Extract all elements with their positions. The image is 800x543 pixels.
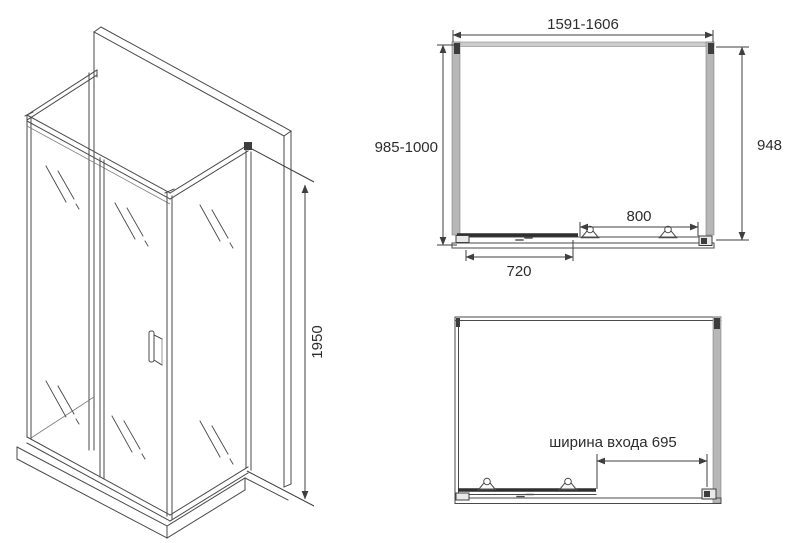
dimension-side-depth: 948 <box>716 47 782 240</box>
roller-right-open <box>559 478 577 490</box>
technical-drawing: 1950 <box>0 0 800 543</box>
glass-reflection-marks <box>46 166 233 464</box>
plan-view-open: ширина входа 695 <box>455 317 721 504</box>
dimension-door-width: 720 <box>466 240 573 280</box>
enclosure-frame <box>452 42 714 235</box>
entrance-width-label: ширина входа 695 <box>549 434 677 451</box>
dimension-depth-range: 985-1000 <box>375 45 457 245</box>
shower-tray <box>17 447 288 538</box>
door-width-label: 720 <box>506 263 531 280</box>
isometric-view: 1950 <box>17 27 326 538</box>
overall-width-label: 1591-1606 <box>547 16 619 33</box>
dimension-entrance-width: ширина входа 695 <box>549 434 707 489</box>
dimension-fixed-section: 800 <box>580 208 698 236</box>
door-rail-assembly <box>452 226 714 248</box>
back-wall-panel <box>94 27 291 487</box>
door-handle <box>149 331 162 365</box>
open-door-assembly <box>456 478 716 500</box>
height-dimension: 1950 <box>247 149 326 506</box>
drawing-canvas: 1950 <box>0 0 800 543</box>
height-dimension-label: 1950 <box>309 325 326 358</box>
right-side-panel <box>170 142 252 521</box>
roller-left <box>581 226 599 238</box>
roller-right <box>659 226 677 238</box>
front-sliding-door-assembly <box>25 112 174 521</box>
roller-left-open <box>478 478 496 490</box>
depth-range-label: 985-1000 <box>375 139 438 156</box>
enclosure-frame-open <box>455 317 721 504</box>
plan-view-closed: 1591-1606 985-1000 948 800 720 <box>375 16 782 280</box>
side-depth-label: 948 <box>757 137 782 154</box>
fixed-section-label: 800 <box>626 208 651 225</box>
dimension-overall-width: 1591-1606 <box>453 16 713 42</box>
